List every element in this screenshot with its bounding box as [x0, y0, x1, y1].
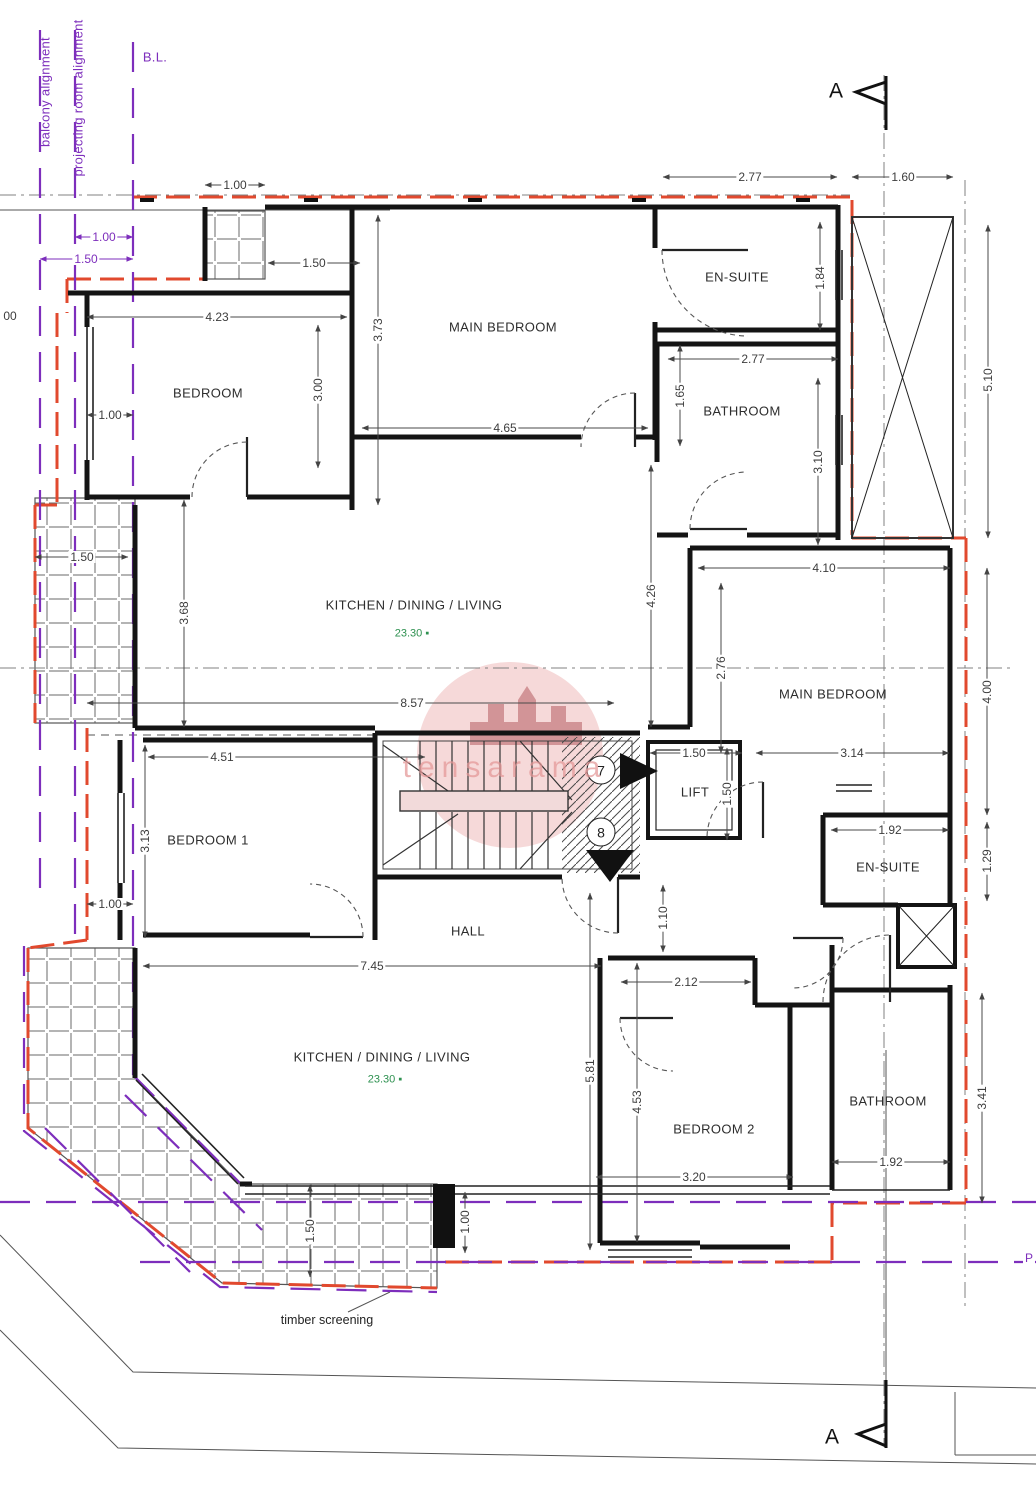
floor-plan-sheet: EN-SUITEMAIN BEDROOMBEDROOMBATHROOMKITCH…: [0, 0, 1036, 1496]
dimension-text: 1.50: [721, 780, 733, 807]
dimension-text: P: [1023, 1252, 1035, 1264]
dimension-text: 1.92: [877, 1156, 904, 1168]
room-label: BATHROOM: [703, 405, 780, 418]
section-marker-letter: A: [829, 81, 843, 102]
room-area-value: 23.30 ▪: [393, 629, 431, 640]
dimension-text: 4.65: [491, 422, 518, 434]
dimension-text: 3.68: [178, 599, 190, 626]
dimension-text: 2.12: [672, 976, 699, 988]
dimension-text: 2.76: [715, 654, 727, 681]
room-label: BEDROOM 1: [167, 834, 249, 847]
dimension-text: 1.65: [674, 382, 686, 409]
dimension-text: 7.45: [358, 960, 385, 972]
alignment-label: B.L.: [143, 51, 167, 64]
room-label: BEDROOM: [173, 387, 243, 400]
dimension-text: 4.00: [981, 678, 993, 705]
dimension-text: 1.92: [876, 824, 903, 836]
dimension-text: 1.60: [889, 171, 916, 183]
dimension-text: 1.00: [96, 409, 123, 421]
room-area-value: 23.30 ▪: [366, 1075, 404, 1086]
alignment-label: balcony alignment: [39, 37, 52, 147]
dimension-text: 3.14: [838, 747, 865, 759]
dimension-text: 00: [1, 310, 18, 322]
dimension-text: 2.77: [736, 171, 763, 183]
dimension-text: 1.00: [96, 898, 123, 910]
dimension-text: 4.51: [208, 751, 235, 763]
plan-labels: EN-SUITEMAIN BEDROOMBEDROOMBATHROOMKITCH…: [0, 0, 1036, 1496]
dimension-text: 4.10: [810, 562, 837, 574]
dimension-text: 3.00: [312, 376, 324, 403]
room-label: LIFT: [681, 786, 709, 799]
dimension-text: 1.50: [68, 551, 95, 563]
dimension-text: 1.84: [814, 264, 826, 291]
dimension-text: 3.73: [372, 316, 384, 343]
section-marker-letter: A: [825, 1427, 839, 1448]
dimension-text: 1.00: [221, 179, 248, 191]
room-label: BATHROOM: [849, 1095, 926, 1108]
room-label: KITCHEN / DINING / LIVING: [326, 599, 503, 612]
dimension-text: 5.10: [982, 366, 994, 393]
room-label: HALL: [451, 925, 485, 938]
dimension-text: 8.57: [398, 697, 425, 709]
dimension-text: 1.50: [680, 747, 707, 759]
dimension-text: 1.00: [90, 231, 117, 243]
dimension-text: 4.53: [631, 1088, 643, 1115]
dimension-text: 3.13: [139, 827, 151, 854]
dimension-text: 4.26: [645, 582, 657, 609]
room-label: EN-SUITE: [705, 271, 769, 284]
annotation-text: timber screening: [281, 1314, 373, 1327]
stair-flight-number: 8: [587, 818, 616, 847]
room-label: KITCHEN / DINING / LIVING: [294, 1051, 471, 1064]
room-label: MAIN BEDROOM: [449, 321, 557, 334]
watermark-text: tensarama: [403, 753, 608, 783]
dimension-text: 1.50: [300, 257, 327, 269]
dimension-text: 4.23: [203, 311, 230, 323]
dimension-text: 3.20: [680, 1171, 707, 1183]
dimension-text: 5.81: [584, 1057, 596, 1084]
dimension-text: 1.50: [304, 1217, 316, 1244]
dimension-text: 1.00: [459, 1208, 471, 1235]
room-label: EN-SUITE: [856, 861, 920, 874]
dimension-text: 1.50: [72, 253, 99, 265]
alignment-label: projecting room alignment: [72, 19, 85, 176]
dimension-text: 1.10: [657, 904, 669, 931]
room-label: BEDROOM 2: [673, 1123, 755, 1136]
room-label: MAIN BEDROOM: [779, 688, 887, 701]
dimension-text: 3.41: [976, 1084, 988, 1111]
dimension-text: 3.10: [812, 448, 824, 475]
dimension-text: 2.77: [739, 353, 766, 365]
dimension-text: 1.29: [981, 847, 993, 874]
